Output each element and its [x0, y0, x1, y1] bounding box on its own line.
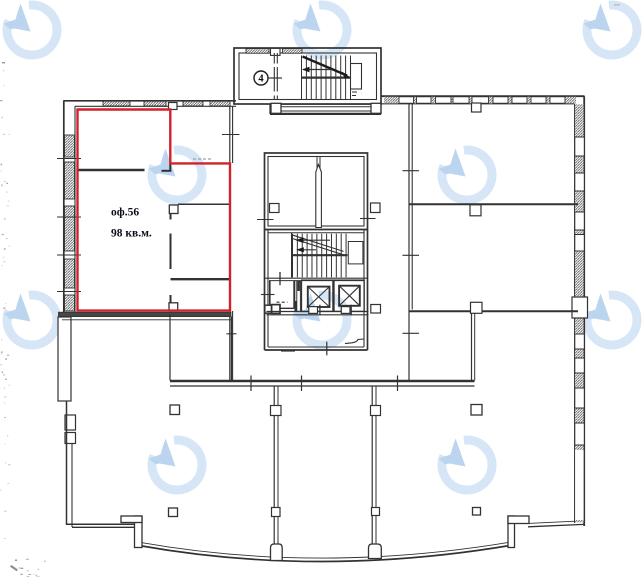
svg-text:98 кв.м.: 98 кв.м.: [111, 228, 152, 240]
svg-text:4: 4: [258, 74, 264, 85]
svg-text:оф.56: оф.56: [111, 207, 139, 219]
